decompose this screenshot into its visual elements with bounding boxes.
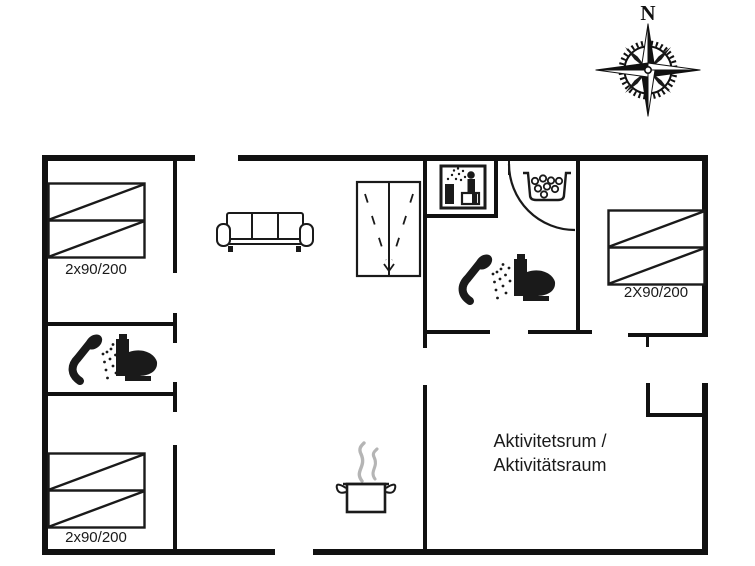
beds-bottom-left	[49, 454, 145, 528]
wall-hall-lower	[173, 445, 177, 552]
bed-size-label-top-left: 2x90/200	[40, 261, 152, 278]
activity-room-label-line2: Aktivitätsraum	[450, 453, 650, 477]
bed-size-label-right: 2X90/200	[606, 284, 706, 301]
wall-doorframe-tick	[646, 337, 649, 347]
steam-icon	[359, 443, 364, 481]
compass-north-label: N	[628, 1, 668, 26]
wall-sauna-right	[494, 161, 498, 218]
beds-top-left	[49, 184, 145, 258]
shower-icon-left-bathroom	[73, 331, 122, 381]
activity-room-label: Aktivitetsrum / Aktivitätsraum	[450, 429, 650, 477]
wall-sauna-bottom	[427, 214, 498, 218]
wall-right-lower	[702, 383, 708, 555]
wall-bathleft-top	[45, 322, 177, 326]
wall-bathtop-bottom-b	[528, 330, 592, 334]
wall-left	[42, 155, 48, 555]
bed-size-label-bottom-left: 2x90/200	[40, 529, 152, 546]
wall-top-left	[42, 155, 195, 161]
wall-bedroom-right-bottom	[628, 333, 708, 337]
floorplan-drawing	[0, 0, 755, 566]
sauna-icon	[441, 166, 485, 208]
wall-hall-upper	[173, 158, 177, 273]
wall-bottom-right	[313, 549, 708, 555]
toilet-icon-left-bathroom	[116, 334, 157, 381]
shower-icon-top-bathroom	[463, 251, 512, 301]
wall-bottom-left	[42, 549, 275, 555]
wall-hall-cap2	[173, 382, 177, 412]
wall-bathleft-bottom	[45, 392, 177, 396]
wall-top-right	[238, 155, 708, 161]
wall-mid-upper	[423, 158, 427, 348]
wall-hall-cap1	[173, 313, 177, 343]
beds-right	[609, 211, 705, 285]
wall-bathtop-bottom-a	[425, 330, 490, 334]
floorplan-canvas: N 2x90/200 2x90/200 2X90/200 Aktivitetsr…	[0, 0, 755, 566]
wall-mid-lower	[423, 385, 427, 552]
wall-bath-bedroom-divider	[576, 161, 580, 334]
wall-nook-bottom	[646, 413, 705, 417]
compass-rose-icon	[596, 24, 700, 116]
steam-icon	[373, 449, 377, 479]
wardrobe-icon	[357, 182, 420, 276]
wall-nook-left	[646, 383, 650, 417]
sofa-icon	[217, 213, 313, 252]
cooking-pot-icon	[337, 443, 396, 512]
activity-room-label-line1: Aktivitetsrum /	[450, 429, 650, 453]
toilet-icon-top-bathroom	[514, 254, 555, 301]
whirlpool-icon	[523, 173, 571, 200]
